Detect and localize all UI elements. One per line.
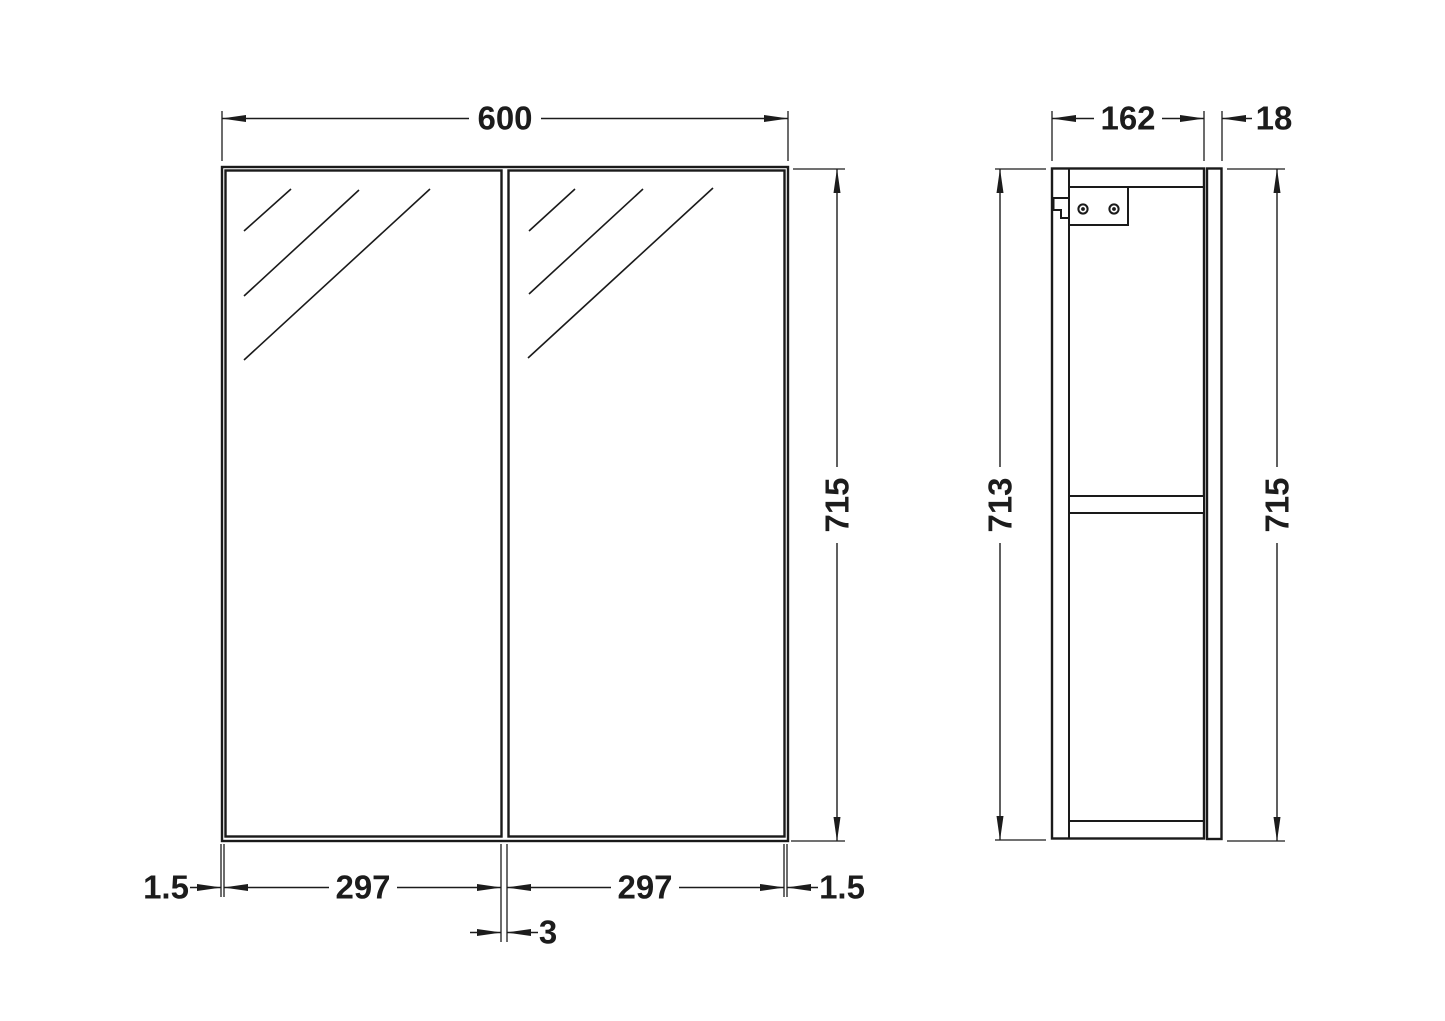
dimension-front-height: 715 xyxy=(791,169,856,841)
hanging-bracket xyxy=(1054,187,1129,225)
door-thickness-value: 18 xyxy=(1256,100,1293,137)
center-gap-value: 3 xyxy=(539,914,557,951)
right-gap-value: 1.5 xyxy=(819,869,865,906)
dimension-carcass-height: 713 xyxy=(982,169,1047,840)
dimension-bottom-chain: 1.5 297 297 1.5 3 xyxy=(143,844,865,951)
dimension-front-width: 600 xyxy=(222,100,788,162)
right-door-width-value: 297 xyxy=(617,869,672,906)
dimension-side-depth: 162 18 xyxy=(1052,100,1292,162)
bracket-plate xyxy=(1069,187,1128,225)
middle-shelf xyxy=(1069,496,1204,513)
left-door-width-value: 297 xyxy=(335,869,390,906)
drawing-canvas: 600 715 1.5 297 29 xyxy=(0,0,1445,1021)
front-width-value: 600 xyxy=(477,100,532,137)
front-left-mirror-door xyxy=(226,171,502,837)
side-door-height-value: 715 xyxy=(1259,477,1296,532)
front-height-value: 715 xyxy=(819,477,856,532)
side-mirror-door xyxy=(1207,169,1222,840)
bracket-screw-center xyxy=(1112,207,1116,211)
side-depth-value: 162 xyxy=(1100,100,1155,137)
bracket-hook-notch xyxy=(1054,198,1070,218)
rotated-label-group: 715 xyxy=(819,467,856,543)
bracket-screw-center xyxy=(1081,207,1085,211)
side-view xyxy=(1052,169,1222,840)
left-gap-value: 1.5 xyxy=(143,869,189,906)
front-view xyxy=(222,167,788,841)
rotated-label-group: 715 xyxy=(1259,467,1296,543)
rotated-label-group: 713 xyxy=(982,467,1019,543)
side-view-dimensions: 162 18 713 715 xyxy=(982,100,1296,842)
dimension-side-door-height: 715 xyxy=(1227,169,1296,841)
front-right-mirror-door xyxy=(509,171,785,837)
technical-drawing: 600 715 1.5 297 29 xyxy=(0,0,1445,1021)
carcass-height-value: 713 xyxy=(982,477,1019,532)
